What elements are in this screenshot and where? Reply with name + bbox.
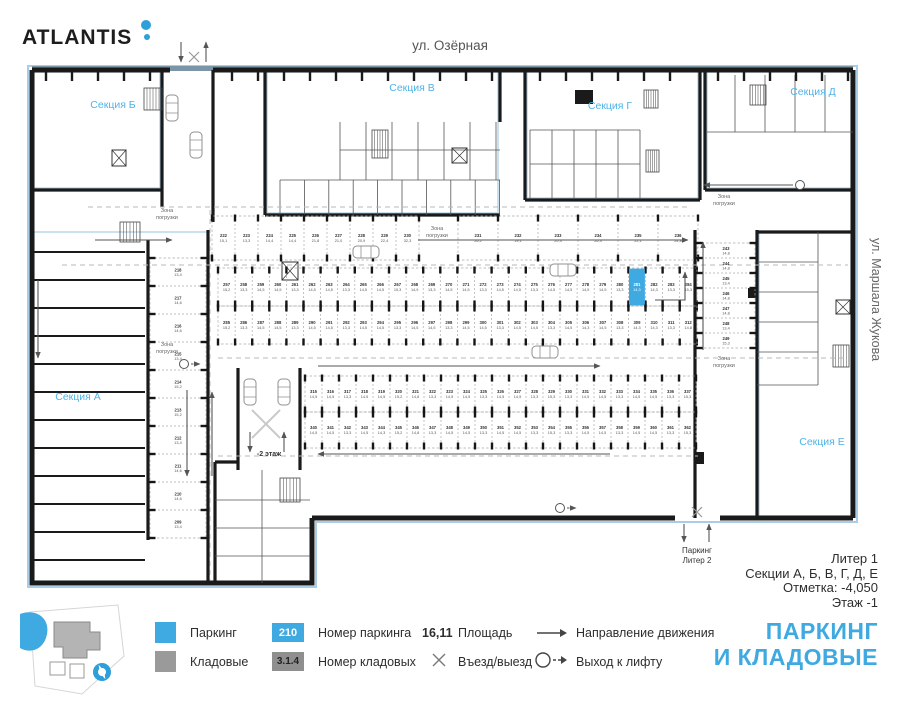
parking-stall[interactable]: 32414,5 [463,389,471,399]
svg-text:13,3: 13,3 [240,288,247,292]
svg-text:273: 273 [497,282,505,287]
parking-stall[interactable]: 29813,3 [445,320,453,330]
svg-text:358: 358 [616,425,624,430]
parking-stall[interactable]: 30714,5 [599,320,607,330]
parking-stall[interactable]: 31214,8 [685,320,693,330]
svg-text:14,5: 14,5 [274,288,281,292]
parking-stall[interactable]: 28814,5 [274,320,282,330]
parking-stall[interactable]: 23032,3 [404,233,412,243]
parking-stall[interactable]: 36113,3 [667,425,675,435]
parking-stall[interactable]: 22215,1 [220,233,228,243]
loading-zone-label: Зонапогрузки [713,194,735,207]
section-label: Секция Е [799,436,845,448]
parking-stall[interactable]: 31814,5 [361,389,369,399]
parking-stall[interactable]: 33715,3 [684,389,692,399]
parking-stall[interactable]: 21213,4 [174,436,182,446]
section-label: Секция Г [588,100,632,112]
parking-stall[interactable]: 32714,5 [514,389,522,399]
svg-text:359: 359 [633,425,641,430]
svg-text:Зона: Зона [718,356,731,362]
svg-text:353: 353 [531,425,539,430]
svg-text:15,2: 15,2 [223,288,230,292]
svg-text:230: 230 [404,233,412,238]
svg-text:356: 356 [582,425,590,430]
parking-stall[interactable]: 27014,5 [445,282,453,292]
svg-text:21,8: 21,8 [312,239,319,243]
svg-text:Зона: Зона [161,208,174,214]
parking-stall[interactable]: 27714,5 [565,282,573,292]
parking-stall[interactable]: 31713,3 [344,389,352,399]
storage-number-badge: 3.1.4 [272,652,304,671]
parking-stall[interactable]: 24614,8 [722,291,730,301]
parking-stall[interactable]: 35313,3 [531,425,539,435]
parking-stall[interactable]: 22313,3 [243,233,251,243]
svg-text:14,5: 14,5 [446,431,453,435]
selected-parking-stall[interactable]: 28114,3 [629,269,645,306]
parking-stall[interactable]: 31014,3 [650,320,658,330]
parking-stall[interactable]: 26814,9 [411,282,419,292]
svg-text:228: 228 [358,233,366,238]
svg-text:321: 321 [412,389,420,394]
parking-stall[interactable]: 20913,4 [174,520,182,530]
parking-stall[interactable]: 26913,3 [428,282,436,292]
svg-text:333: 333 [616,389,624,394]
parking-stall[interactable]: 23219,1 [514,233,522,243]
svg-text:15,3: 15,3 [548,395,555,399]
svg-text:244: 244 [723,261,731,266]
svg-text:13,3: 13,3 [616,288,623,292]
svg-text:14,3: 14,3 [650,288,657,292]
svg-text:342: 342 [344,425,352,430]
parking-stall[interactable]: 26314,5 [325,282,333,292]
svg-text:357: 357 [599,425,607,430]
stairs-icon [750,85,766,105]
svg-text:14,5: 14,5 [650,431,657,435]
svg-text:318: 318 [361,389,369,394]
section-label: Секция А [55,391,101,403]
parking-stall[interactable]: 35013,3 [480,425,488,435]
parking-stall[interactable]: 35614,5 [582,425,590,435]
parking-stall[interactable]: 28313,3 [667,282,675,292]
parking-stall[interactable]: 34614,8 [412,425,420,435]
svg-text:15,2: 15,2 [174,385,181,389]
parking-stall[interactable]: 22514,4 [289,233,297,243]
svg-text:13,3: 13,3 [616,431,623,435]
svg-text:погрузки: погрузки [713,363,735,369]
svg-text:212: 212 [175,436,183,441]
section-label: Секция В [389,82,435,94]
svg-text:225: 225 [289,233,297,238]
svg-text:308: 308 [616,320,624,325]
parking-stall[interactable]: 23624,8 [674,233,682,243]
svg-text:14,5: 14,5 [360,326,367,330]
parking-stall[interactable]: 34014,5 [310,425,318,435]
parking-stall[interactable]: 35214,5 [514,425,522,435]
parking-stall[interactable]: 33013,3 [565,389,573,399]
parking-stall[interactable]: 24414,8 [722,261,730,271]
svg-text:289: 289 [291,320,299,325]
svg-text:14,5: 14,5 [308,326,315,330]
parking-stall[interactable]: 30914,3 [633,320,641,330]
parking-stall[interactable]: 29213,3 [343,320,351,330]
parking-stall[interactable]: 31113,3 [667,320,675,330]
parking-stall[interactable]: 30614,3 [582,320,590,330]
parking-stall[interactable]: 28714,5 [257,320,265,330]
svg-text:295: 295 [394,320,402,325]
svg-text:320: 320 [395,389,403,394]
svg-text:283: 283 [668,282,676,287]
parking-stall[interactable]: 23320,3 [554,233,562,243]
svg-text:343: 343 [361,425,369,430]
svg-text:14,5: 14,5 [462,288,469,292]
parking-stall[interactable]: 27314,5 [496,282,504,292]
parking-stall[interactable]: 27513,3 [531,282,539,292]
svg-text:погрузки: погрузки [713,201,735,207]
parking-stall[interactable]: 34713,3 [429,425,437,435]
parking-stall[interactable]: 34914,5 [463,425,471,435]
parking-stall[interactable]: 26715,3 [394,282,402,292]
svg-text:14,5: 14,5 [325,326,332,330]
svg-text:22,4: 22,4 [381,239,388,243]
parking-stall[interactable]: 26413,3 [343,282,351,292]
parking-stall[interactable]: 21114,6 [174,464,182,474]
parking-stall[interactable]: 23522,1 [634,233,642,243]
svg-text:209: 209 [175,520,183,525]
svg-text:304: 304 [548,320,556,325]
parking-stall[interactable]: 32614,5 [497,389,505,399]
parking-number-badge: 210 [272,623,304,642]
car-icon [278,379,290,405]
svg-text:15,3: 15,3 [394,288,401,292]
parking-stall[interactable]: 29414,5 [377,320,385,330]
svg-text:349: 349 [463,425,471,430]
parking-stall[interactable]: 33214,5 [599,389,607,399]
svg-text:227: 227 [335,233,343,238]
parking-stall[interactable]: 22621,8 [312,233,320,243]
parking-stall[interactable]: 26014,5 [274,282,282,292]
svg-text:14,5: 14,5 [446,395,453,399]
parking-swatch [155,622,176,643]
parking-stall[interactable]: 26214,5 [308,282,316,292]
parking-stall[interactable]: 30514,5 [565,320,573,330]
svg-text:13,3: 13,3 [616,326,623,330]
svg-text:13,3: 13,3 [667,326,674,330]
parking-stall[interactable]: 30014,5 [479,320,487,330]
storage-number-label: Номер кладовых [318,655,416,669]
page-title: ПАРКИНГ И КЛАДОВЫЕ [714,618,878,670]
svg-text:20,9: 20,9 [358,239,365,243]
svg-text:335: 335 [650,389,658,394]
svg-text:14,5: 14,5 [308,288,315,292]
parking-stall[interactable]: 21315,2 [174,408,182,418]
parking-stall[interactable]: 30113,3 [496,320,504,330]
car-icon [166,95,178,121]
parking-stall[interactable]: 24714,8 [722,306,730,316]
stairs-icon [644,90,658,108]
parking-stall[interactable]: 35513,3 [565,425,573,435]
svg-text:346: 346 [412,425,420,430]
svg-text:13,3: 13,3 [667,395,674,399]
parking-stall[interactable]: 32213,3 [429,389,437,399]
parking-stall[interactable]: 34814,5 [446,425,454,435]
svg-text:14,5: 14,5 [377,288,384,292]
svg-text:14,6: 14,6 [174,497,181,501]
svg-text:323: 323 [446,389,454,394]
svg-text:347: 347 [429,425,437,430]
parking-stall[interactable]: 32114,8 [412,389,420,399]
parking-stall[interactable]: 27213,3 [479,282,487,292]
svg-text:13,3: 13,3 [531,395,538,399]
svg-text:14,5: 14,5 [497,431,504,435]
parking-stall[interactable]: 24314,8 [722,246,730,256]
parking-stall[interactable]: 33514,5 [650,389,658,399]
parking-stall[interactable]: 34213,3 [344,425,352,435]
svg-text:305: 305 [565,320,573,325]
svg-text:245: 245 [723,276,731,281]
parking-stall[interactable]: 28913,3 [291,320,299,330]
svg-text:264: 264 [343,282,351,287]
svg-text:352: 352 [514,425,522,430]
svg-text:13,4: 13,4 [174,441,181,445]
parking-stall[interactable]: 22820,9 [358,233,366,243]
parking-stall[interactable]: 34314,5 [361,425,369,435]
parking-stall[interactable]: 31514,5 [310,389,318,399]
parking-stall[interactable]: 21614,6 [174,324,182,334]
loading-zone-label: Зонапогрузки [156,208,178,221]
parking-stall[interactable]: 33313,3 [616,389,624,399]
svg-text:14,5: 14,5 [257,326,264,330]
svg-text:285: 285 [223,320,231,325]
parking-stall[interactable]: 34414,3 [378,425,386,435]
svg-text:13,3: 13,3 [667,431,674,435]
parking-stall[interactable]: 32513,3 [480,389,488,399]
parking-stall[interactable]: 27414,5 [514,282,522,292]
svg-text:362: 362 [684,425,692,430]
parking-stall[interactable]: 25813,3 [240,282,248,292]
parking-stall[interactable]: 26614,5 [377,282,385,292]
svg-text:14,5: 14,5 [310,431,317,435]
svg-text:14,5: 14,5 [582,288,589,292]
svg-text:214: 214 [175,380,183,385]
parking-stall[interactable]: 28515,2 [223,320,231,330]
svg-text:344: 344 [378,425,386,430]
svg-text:13,3: 13,3 [479,288,486,292]
parking-stall[interactable]: 22414,4 [266,233,274,243]
svg-text:Зона: Зона [431,226,444,232]
svg-text:14,6: 14,6 [174,329,181,333]
parking-stall[interactable]: 28613,3 [240,320,248,330]
svg-text:287: 287 [257,320,265,325]
parking-stall[interactable]: 36215,3 [684,425,692,435]
parking-stall[interactable]: 22721,0 [335,233,343,243]
parking-stall[interactable]: 30214,5 [514,320,522,330]
parking-stall[interactable]: 35114,5 [497,425,505,435]
parking-stall[interactable]: 36014,5 [650,425,658,435]
parking-stall[interactable]: 26113,3 [291,282,299,292]
parking-stall[interactable]: 24915,3 [722,336,730,346]
stairs-icon [144,88,162,110]
parking-stall[interactable]: 30813,3 [616,320,624,330]
parking-stall[interactable]: 29314,5 [360,320,368,330]
svg-text:267: 267 [394,282,402,287]
svg-text:14,3: 14,3 [650,326,657,330]
svg-text:14,5: 14,5 [650,395,657,399]
parking-stall[interactable]: 29914,5 [462,320,470,330]
parking-stall[interactable]: 31914,5 [378,389,386,399]
parking-stall[interactable]: 21813,4 [174,268,182,278]
svg-text:14,4: 14,4 [289,239,296,243]
svg-text:14,5: 14,5 [599,288,606,292]
parking-stall[interactable]: 33114,5 [582,389,590,399]
parking-stall[interactable]: 29513,3 [394,320,402,330]
svg-text:315: 315 [310,389,318,394]
parking-stall[interactable]: 25715,2 [223,282,231,292]
street-label-zhukova: ул. Маршала Жукова [869,238,883,361]
parking-stall[interactable]: 27114,5 [462,282,470,292]
parking-stall[interactable]: 23126,2 [474,233,482,243]
svg-text:272: 272 [480,282,488,287]
parking-stall[interactable]: 29014,5 [308,320,316,330]
elevator-icon [112,150,126,166]
svg-text:15,3: 15,3 [548,431,555,435]
parking-stall[interactable]: 23426,3 [594,233,602,243]
parking-stall[interactable]: 35714,5 [599,425,607,435]
svg-text:331: 331 [582,389,590,394]
svg-text:290: 290 [309,320,317,325]
parking-stall[interactable]: 34515,2 [395,425,403,435]
parking-stall[interactable]: 29614,5 [411,320,419,330]
section-label: Секция Б [90,99,135,111]
svg-text:340: 340 [310,425,318,430]
car-icon [550,264,576,276]
parking-stall[interactable]: 27914,5 [599,282,607,292]
svg-text:213: 213 [175,408,183,413]
svg-text:14,5: 14,5 [327,431,334,435]
svg-text:303: 303 [531,320,539,325]
parking-stall[interactable]: 35914,5 [633,425,641,435]
svg-text:Зона: Зона [161,342,174,348]
lift-exit-icon [556,504,565,513]
svg-text:14,5: 14,5 [463,395,470,399]
parking-stall[interactable]: 32015,2 [395,389,403,399]
svg-text:14,5: 14,5 [582,431,589,435]
svg-text:14,3: 14,3 [582,326,589,330]
parking-stall[interactable]: 29114,5 [325,320,333,330]
parking-stall[interactable]: 28214,3 [650,282,658,292]
svg-text:14,5: 14,5 [565,288,572,292]
svg-text:279: 279 [599,282,607,287]
svg-text:297: 297 [428,320,436,325]
parking-stall[interactable]: 27814,5 [582,282,590,292]
svg-text:13,3: 13,3 [428,288,435,292]
parking-stall[interactable]: 29714,5 [428,320,436,330]
svg-text:13,3: 13,3 [243,239,250,243]
parking-stall[interactable]: 28013,3 [616,282,624,292]
parking-stall[interactable]: 24813,4 [722,321,730,331]
parking-stall[interactable]: 35415,3 [548,425,556,435]
svg-text:298: 298 [445,320,453,325]
parking-stall[interactable]: 30314,5 [531,320,539,330]
stairs-icon [372,130,388,158]
parking-stall[interactable]: 32314,5 [446,389,454,399]
plan-info-block: Литер 1 Секции А, Б, В, Г, Д, Е Отметка:… [745,552,878,610]
svg-text:13,4: 13,4 [174,525,181,529]
parking-stall[interactable]: 34114,5 [327,425,335,435]
parking-stall[interactable]: 22922,4 [381,233,389,243]
svg-text:14,5: 14,5 [445,288,452,292]
parking-stall[interactable]: 32915,3 [548,389,556,399]
svg-text:14,5: 14,5 [257,288,264,292]
parking-stall[interactable]: 33414,5 [633,389,641,399]
svg-text:13,4: 13,4 [722,282,729,286]
svg-text:погрузки: погрузки [156,215,178,221]
svg-text:14,5: 14,5 [361,431,368,435]
parking-stall[interactable]: 30413,3 [548,320,556,330]
svg-text:14,5: 14,5 [599,395,606,399]
parking-stall[interactable]: 21014,6 [174,492,182,502]
parking-stall[interactable]: 35813,3 [616,425,624,435]
parking-stall[interactable]: 26514,5 [360,282,368,292]
svg-text:259: 259 [257,282,265,287]
svg-text:14,8: 14,8 [412,395,419,399]
loading-zone-label: Зонапогрузки [156,342,178,355]
svg-text:13,3: 13,3 [240,326,247,330]
stairs-icon [833,345,849,367]
svg-text:351: 351 [497,425,505,430]
svg-text:14,5: 14,5 [378,395,385,399]
svg-text:222: 222 [220,233,228,238]
svg-text:13,3: 13,3 [565,395,572,399]
parking-stall[interactable]: 21714,6 [174,296,182,306]
svg-text:14,4: 14,4 [266,239,273,243]
svg-text:13,3: 13,3 [394,326,401,330]
parking-legend-label: Паркинг [190,626,237,640]
exit-label: Литер 2 [683,556,712,565]
svg-text:14,5: 14,5 [565,326,572,330]
svg-text:296: 296 [411,320,419,325]
svg-text:14,5: 14,5 [361,395,368,399]
svg-text:325: 325 [480,389,488,394]
svg-text:14,5: 14,5 [479,326,486,330]
liter-line: Литер 1 [745,552,878,567]
parking-stall[interactable]: 21415,2 [174,380,182,390]
direction-legend-label: Направление движения [576,626,714,640]
parking-stall[interactable]: 33613,3 [667,389,675,399]
svg-text:292: 292 [343,320,351,325]
svg-text:217: 217 [175,296,183,301]
parking-stall[interactable]: 32813,3 [531,389,539,399]
svg-text:13,3: 13,3 [531,288,538,292]
svg-text:328: 328 [531,389,539,394]
svg-text:262: 262 [309,282,317,287]
parking-stall[interactable]: 25914,5 [257,282,265,292]
svg-text:247: 247 [723,306,731,311]
svg-text:14,5: 14,5 [514,288,521,292]
parking-stall[interactable]: 27614,5 [548,282,556,292]
logo-dot-icon [141,20,151,30]
parking-stall[interactable]: 24513,4 [722,276,730,286]
svg-text:13,3: 13,3 [565,431,572,435]
svg-text:276: 276 [548,282,556,287]
svg-text:235: 235 [635,233,643,238]
svg-text:246: 246 [723,291,731,296]
svg-text:13,3: 13,3 [616,395,623,399]
svg-text:13,3: 13,3 [429,431,436,435]
ramp-label: -2 этаж [257,451,282,458]
parking-stall[interactable]: 31614,5 [327,389,335,399]
parking-stall[interactable]: 28415,3 [685,282,693,292]
svg-text:312: 312 [685,320,693,325]
